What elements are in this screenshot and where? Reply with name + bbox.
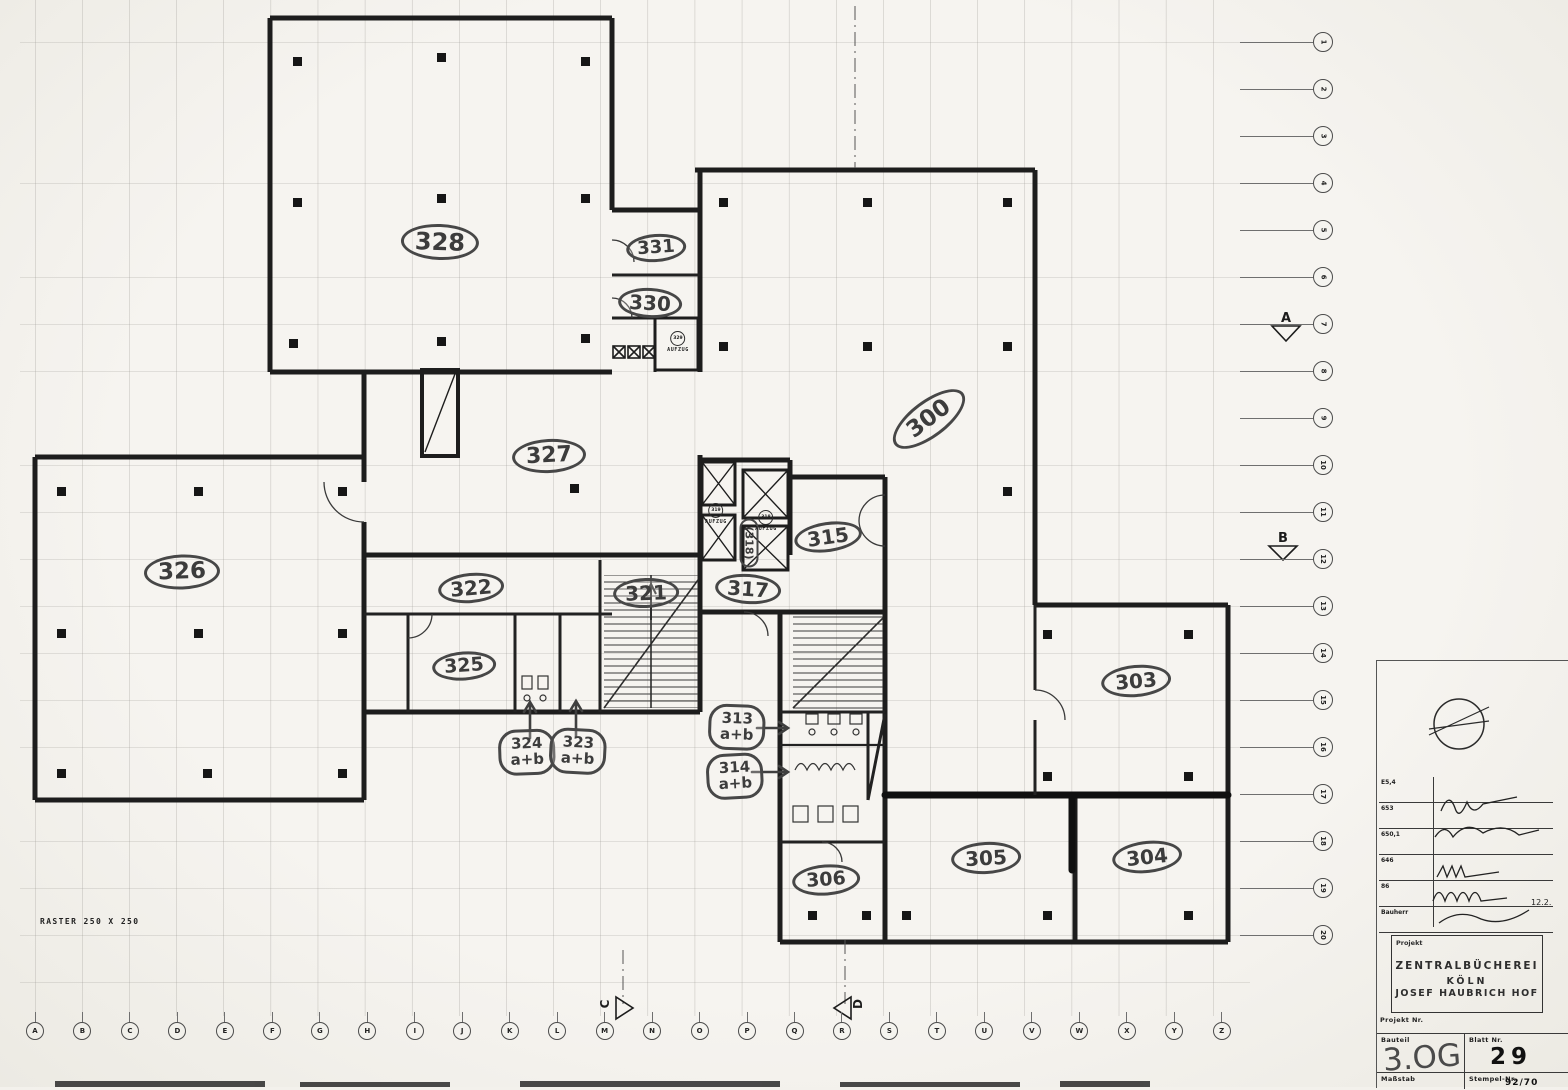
grid-number: 20: [1240, 925, 1333, 945]
grid-letter-bubble: F: [263, 1022, 281, 1040]
grid-letter-bubble: B: [73, 1022, 91, 1040]
grid-number-text: 13: [1319, 601, 1327, 611]
grid-number: 1: [1240, 32, 1333, 52]
leader-line: [82, 1012, 83, 1022]
room-suffix: a+b: [718, 775, 752, 792]
grid-letter: K: [501, 1012, 519, 1040]
leader-line: [1031, 1012, 1032, 1022]
grid-number: 19: [1240, 878, 1333, 898]
leader-line: [747, 1012, 748, 1022]
leader-line: [1240, 89, 1313, 90]
section-label-d: D: [851, 999, 865, 1009]
leader-line: [319, 1012, 320, 1022]
grid-number-bubble: 10: [1313, 455, 1333, 475]
grid-number-text: 18: [1319, 836, 1327, 846]
grid-number-bubble: 3: [1313, 126, 1333, 146]
grid-letter-bubble: L: [548, 1022, 566, 1040]
leader-line: [1240, 747, 1313, 748]
grid-letter: L: [548, 1012, 566, 1040]
grid-letter: Y: [1165, 1012, 1183, 1040]
grid-letter: H: [358, 1012, 376, 1040]
grid-letter-bubble: E: [216, 1022, 234, 1040]
room-label-323ab: 323 a+b: [548, 727, 608, 775]
blatt-nr-label: Blatt Nr.: [1469, 1036, 1503, 1044]
grid-number-bubble: 12: [1313, 549, 1333, 569]
grid-letter: P: [738, 1012, 756, 1040]
grid-letter-bubble: X: [1118, 1022, 1136, 1040]
grid-number-text: 12: [1319, 554, 1327, 564]
info-row-2: Maßstab Stempel-Nr. 92/70: [1377, 1072, 1568, 1090]
room-suffix: a+b: [510, 751, 544, 768]
signature-date: 12.2.: [1531, 898, 1551, 907]
leader-line: [841, 1012, 842, 1022]
grid-number: 9: [1240, 408, 1333, 428]
grid-letter: X: [1118, 1012, 1136, 1040]
grid-letter: W: [1070, 1012, 1088, 1040]
grid-letter: B: [73, 1012, 91, 1040]
leader-line: [1221, 1012, 1222, 1022]
grid-letter-bubble: Z: [1213, 1022, 1231, 1040]
room-label-314ab: 314 a+b: [705, 752, 765, 800]
elevator-number: 319: [708, 503, 723, 518]
leader-line: [224, 1012, 225, 1022]
grid-letter-bubble: J: [453, 1022, 471, 1040]
leader-line: [1240, 136, 1313, 137]
grid-letter-axis: A B C D E F: [26, 1012, 1231, 1040]
signatures: 12.2.: [1427, 779, 1567, 939]
grid-number-bubble: 6: [1313, 267, 1333, 287]
leader-line: [557, 1012, 558, 1022]
section-label-c: C: [598, 999, 612, 1008]
grid-number-axis: 1 2 3 4 5 6: [1240, 32, 1333, 945]
grid-number-text: 6: [1319, 275, 1327, 280]
title-block: E5,4 653 650,1 646 86 Bau: [1376, 660, 1568, 1088]
grid-letter: E: [216, 1012, 234, 1040]
leader-line: [1174, 1012, 1175, 1022]
elevator-tag-318: 318 AUFZUG: [755, 510, 777, 532]
grid-letter-bubble: N: [643, 1022, 661, 1040]
leader-line: [1240, 794, 1313, 795]
grid-number-text: 3: [1319, 134, 1327, 139]
grid-number: 18: [1240, 831, 1333, 851]
grid-letter: A: [26, 1012, 44, 1040]
leader-line: [1240, 465, 1313, 466]
leader-line: [936, 1012, 937, 1022]
grid-letter: C: [121, 1012, 139, 1040]
leader-line: [652, 1012, 653, 1022]
room-label-313ab: 313 a+b: [708, 703, 767, 750]
leader-line: [1079, 1012, 1080, 1022]
grid-letter-bubble: D: [168, 1022, 186, 1040]
leader-line: [414, 1012, 415, 1022]
grid-letter: G: [311, 1012, 329, 1040]
signature-row-label: 86: [1381, 883, 1389, 890]
grid-letter-bubble: O: [691, 1022, 709, 1040]
grid-letter-bubble: S: [880, 1022, 898, 1040]
projekt-label: Projekt: [1396, 939, 1423, 947]
grid-letter: Z: [1213, 1012, 1231, 1040]
leader-line: [1240, 888, 1313, 889]
projekt-nr-label: Projekt Nr.: [1380, 1016, 1423, 1024]
grid-number: 6: [1240, 267, 1333, 287]
grid-number-text: 16: [1319, 742, 1327, 752]
leader-line: [1240, 700, 1313, 701]
leader-line: [1240, 230, 1313, 231]
leader-line: [1240, 841, 1313, 842]
grid-number-bubble: 1: [1313, 32, 1333, 52]
grid-letter: U: [975, 1012, 993, 1040]
grid-letter-bubble: U: [975, 1022, 993, 1040]
grid-letter: N: [643, 1012, 661, 1040]
grid-letter: S: [880, 1012, 898, 1040]
massstab-label: Maßstab: [1381, 1075, 1415, 1083]
elevator-tag-319: 319 AUFZUG: [705, 503, 727, 525]
grid-number: 8: [1240, 361, 1333, 381]
grid-letter: I: [406, 1012, 424, 1040]
grid-number-bubble: 17: [1313, 784, 1333, 804]
grid-letter-bubble: P: [738, 1022, 756, 1040]
grid-number: 10: [1240, 455, 1333, 475]
grid-letter-bubble: H: [358, 1022, 376, 1040]
grid-number-bubble: 4: [1313, 173, 1333, 193]
leader-line: [1240, 183, 1313, 184]
grid-number-text: 15: [1319, 695, 1327, 705]
leader-line: [462, 1012, 463, 1022]
grid-number: 14: [1240, 643, 1333, 663]
grid-number-text: 8: [1319, 369, 1327, 374]
grid-number-text: 1: [1319, 40, 1327, 45]
grid-number-text: 19: [1319, 883, 1327, 893]
grid-number-bubble: 7: [1313, 314, 1333, 334]
grid-number: 15: [1240, 690, 1333, 710]
grid-number-bubble: 14: [1313, 643, 1333, 663]
room-suffix: a+b: [560, 750, 594, 767]
elevator-label: AUFZUG: [705, 519, 727, 525]
leader-line: [1240, 324, 1313, 325]
grid-number-bubble: 5: [1313, 220, 1333, 240]
grid-number-text: 11: [1319, 507, 1327, 517]
grid-letter-bubble: R: [833, 1022, 851, 1040]
grid-number-bubble: 18: [1313, 831, 1333, 851]
grid-number-bubble: 16: [1313, 737, 1333, 757]
scan-artifacts: [55, 1081, 1150, 1087]
grid-number: 5: [1240, 220, 1333, 240]
leader-line: [604, 1012, 605, 1022]
room-label-324ab: 324 a+b: [498, 728, 557, 775]
grid-letter-bubble: T: [928, 1022, 946, 1040]
grid-number: 16: [1240, 737, 1333, 757]
grid-number: 13: [1240, 596, 1333, 616]
leader-line: [1126, 1012, 1127, 1022]
grid-number-text: 20: [1319, 930, 1327, 940]
grid-number-bubble: 19: [1313, 878, 1333, 898]
signature-row-label: 650,1: [1381, 831, 1400, 838]
grid-letter-bubble: I: [406, 1022, 424, 1040]
project-name-line1: ZENTRALBÜCHEREI: [1392, 960, 1542, 972]
grid-letter-bubble: M: [596, 1022, 614, 1040]
grid-letter-bubble: G: [311, 1022, 329, 1040]
elevator-number: 318: [758, 510, 773, 525]
grid-number: 11: [1240, 502, 1333, 522]
elevator-number: 329: [670, 331, 685, 346]
grid-letter: F: [263, 1012, 281, 1040]
leader-line: [129, 1012, 130, 1022]
grid-number: 3: [1240, 126, 1333, 146]
grid-letter-bubble: K: [501, 1022, 519, 1040]
grid-number-bubble: 9: [1313, 408, 1333, 428]
leader-line: [177, 1012, 178, 1022]
grid-letter: R: [833, 1012, 851, 1040]
grid-number-text: 10: [1319, 460, 1327, 470]
signature-row-label: 653: [1381, 805, 1394, 812]
grid-number-text: 7: [1319, 322, 1327, 327]
grid-number-text: 9: [1319, 416, 1327, 421]
leader-line: [1240, 371, 1313, 372]
leader-line: [889, 1012, 890, 1022]
raster-note: RASTER 250 X 250: [40, 917, 139, 926]
grid-letter: D: [168, 1012, 186, 1040]
grid-letter: V: [1023, 1012, 1041, 1040]
grid-number-bubble: 2: [1313, 79, 1333, 99]
grid-letter-bubble: A: [26, 1022, 44, 1040]
sheet-info-box: Bauteil 3.OG Blatt Nr. 29 Maßstab Stempe…: [1377, 1033, 1568, 1089]
leader-line: [984, 1012, 985, 1022]
grid-letter: M: [596, 1012, 614, 1040]
grid-number: 2: [1240, 79, 1333, 99]
grid-number-text: 5: [1319, 228, 1327, 233]
leader-line: [1240, 512, 1313, 513]
grid-number-text: 4: [1319, 181, 1327, 186]
grid-letter: Q: [786, 1012, 804, 1040]
signature-row-label: Bauherr: [1381, 909, 1408, 916]
grid-number: 17: [1240, 784, 1333, 804]
leader-line: [1240, 277, 1313, 278]
grid-letter-bubble: Q: [786, 1022, 804, 1040]
project-name-line2: KÖLN: [1392, 976, 1542, 987]
grid-number-text: 14: [1319, 648, 1327, 658]
grid-number: 12: [1240, 549, 1333, 569]
elevator-label: AUFZUG: [667, 347, 689, 353]
north-symbol: [1399, 679, 1519, 769]
leader-line: [1240, 42, 1313, 43]
grid-letter-bubble: C: [121, 1022, 139, 1040]
grid-letter: T: [928, 1012, 946, 1040]
leader-line: [1240, 606, 1313, 607]
structural-grid: [20, 0, 1250, 1016]
grid-number-bubble: 20: [1313, 925, 1333, 945]
grid-letter-bubble: W: [1070, 1022, 1088, 1040]
signature-row-label: E5,4: [1381, 779, 1396, 786]
leader-line: [272, 1012, 273, 1022]
signature-row-label: 646: [1381, 857, 1394, 864]
project-box: Projekt ZENTRALBÜCHEREI KÖLN JOSEF HAUBR…: [1391, 935, 1543, 1013]
elevator-label: AUFZUG: [755, 526, 777, 532]
elevator-tag-329: 329 AUFZUG: [667, 331, 689, 353]
floor-plan-sheet: A B C D 328 331 330 300 327 326 322 321 …: [0, 0, 1568, 1087]
leader-line: [1240, 653, 1313, 654]
grid-number-text: 17: [1319, 789, 1327, 799]
leader-line: [509, 1012, 510, 1022]
leader-line: [1240, 559, 1313, 560]
leader-line: [1240, 418, 1313, 419]
grid-number-bubble: 15: [1313, 690, 1333, 710]
grid-letter: O: [691, 1012, 709, 1040]
blatt-nr-value: 29: [1490, 1044, 1532, 1070]
grid-letter-bubble: Y: [1165, 1022, 1183, 1040]
grid-number-bubble: 11: [1313, 502, 1333, 522]
leader-line: [794, 1012, 795, 1022]
leader-line: [699, 1012, 700, 1022]
project-name-line3: JOSEF HAUBRICH HOF: [1392, 988, 1542, 999]
leader-line: [35, 1012, 36, 1022]
grid-number-bubble: 13: [1313, 596, 1333, 616]
leader-line: [367, 1012, 368, 1022]
grid-number-bubble: 8: [1313, 361, 1333, 381]
grid-letter-bubble: V: [1023, 1022, 1041, 1040]
grid-letter: J: [453, 1012, 471, 1040]
leader-line: [1240, 935, 1313, 936]
grid-number-text: 2: [1319, 87, 1327, 92]
room-suffix: a+b: [720, 726, 754, 743]
grid-number: 7: [1240, 314, 1333, 334]
grid-number: 4: [1240, 173, 1333, 193]
